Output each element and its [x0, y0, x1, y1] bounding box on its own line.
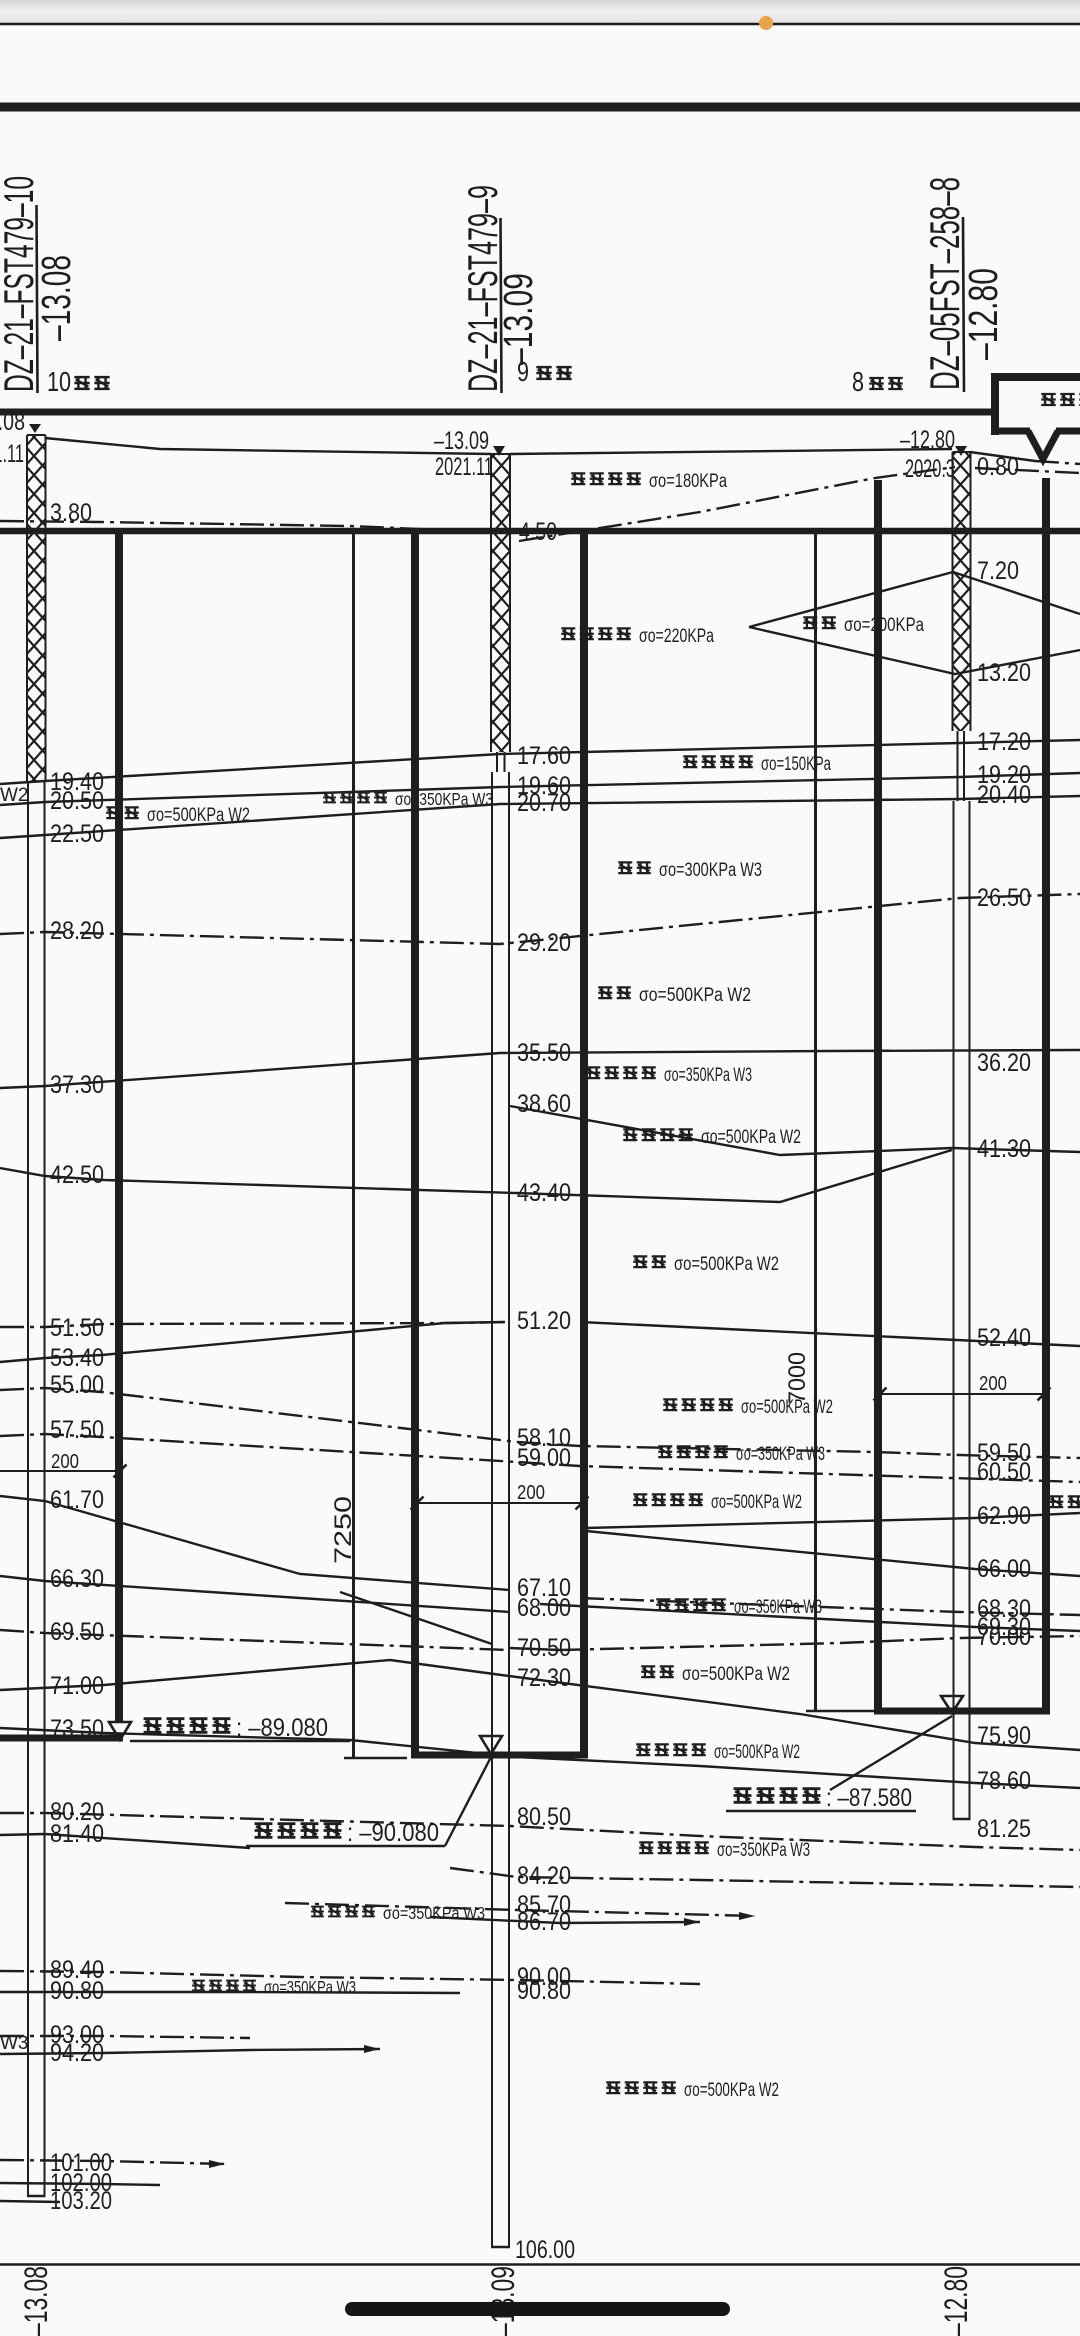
svg-text:σo=150KPa: σo=150KPa — [761, 754, 831, 775]
svg-text:22.50: 22.50 — [50, 820, 104, 848]
svg-text:90.80: 90.80 — [517, 1977, 571, 2005]
svg-text:81.40: 81.40 — [50, 1820, 104, 1848]
svg-text:σo=180KPa: σo=180KPa — [649, 471, 727, 492]
svg-text:200: 200 — [51, 1451, 79, 1473]
svg-text:: –90.080: : –90.080 — [347, 1819, 439, 1847]
svg-text:σo=350KPa W3: σo=350KPa W3 — [734, 1597, 822, 1618]
svg-text:72.30: 72.30 — [517, 1664, 571, 1692]
svg-text:–12.80: –12.80 — [961, 268, 1006, 360]
svg-text:26.50: 26.50 — [977, 884, 1031, 912]
svg-text:7250: 7250 — [330, 1496, 357, 1564]
svg-text:53.40: 53.40 — [50, 1344, 104, 1372]
svg-text:38.60: 38.60 — [517, 1090, 571, 1118]
svg-text:55.00: 55.00 — [50, 1371, 104, 1399]
svg-text:20.40: 20.40 — [977, 781, 1031, 809]
svg-text:17.60: 17.60 — [517, 742, 571, 770]
svg-text:57.50: 57.50 — [50, 1416, 104, 1444]
svg-text:80.50: 80.50 — [517, 1803, 571, 1831]
svg-text:7.20: 7.20 — [977, 557, 1019, 585]
svg-text:84.20: 84.20 — [517, 1862, 571, 1890]
svg-text:200: 200 — [979, 1373, 1007, 1395]
svg-text:0.80: 0.80 — [977, 453, 1019, 481]
svg-text:σo=350KPa W3: σo=350KPa W3 — [717, 1840, 810, 1861]
svg-text:35.50: 35.50 — [517, 1039, 571, 1067]
svg-text:σo=220KPa: σo=220KPa — [639, 626, 714, 647]
svg-text:90.80: 90.80 — [50, 1977, 104, 2005]
svg-text:2021.11: 2021.11 — [0, 440, 24, 468]
svg-text:28.20: 28.20 — [50, 917, 104, 945]
svg-text:66.00: 66.00 — [977, 1555, 1031, 1583]
svg-text:70.50: 70.50 — [517, 1634, 571, 1662]
svg-text:–13.08: –13.08 — [18, 2266, 54, 2336]
svg-text:σo=500KPa W2: σo=500KPa W2 — [147, 805, 250, 826]
svg-text:81.25: 81.25 — [977, 1815, 1031, 1843]
svg-text:4.50: 4.50 — [519, 518, 557, 546]
svg-text:200: 200 — [517, 1482, 545, 1504]
svg-text:–13.08: –13.08 — [34, 255, 79, 341]
svg-text:20.70: 20.70 — [517, 789, 571, 817]
svg-text:51.20: 51.20 — [517, 1307, 571, 1335]
svg-text:62.90: 62.90 — [977, 1502, 1031, 1530]
svg-text:σo=350KPa W3: σo=350KPa W3 — [383, 1903, 485, 1923]
svg-text:70.00: 70.00 — [977, 1623, 1031, 1651]
svg-text:–12.80: –12.80 — [938, 2266, 974, 2336]
svg-text:17.20: 17.20 — [977, 728, 1031, 756]
svg-text:36.20: 36.20 — [977, 1049, 1031, 1077]
svg-text:σo=500KPa W2: σo=500KPa W2 — [701, 1127, 801, 1148]
svg-text:75.90: 75.90 — [977, 1722, 1031, 1750]
svg-text:σo=350KPa W3: σo=350KPa W3 — [395, 789, 493, 809]
svg-text:52.40: 52.40 — [977, 1324, 1031, 1352]
svg-text:29.20: 29.20 — [517, 929, 571, 957]
svg-text:42.50: 42.50 — [50, 1161, 104, 1189]
svg-text:78.60: 78.60 — [977, 1767, 1031, 1795]
svg-text:σo=500KPa W2: σo=500KPa W2 — [639, 985, 751, 1006]
svg-text:13.20: 13.20 — [977, 659, 1031, 687]
svg-text:66.30: 66.30 — [50, 1565, 104, 1593]
svg-text:43.40: 43.40 — [517, 1179, 571, 1207]
svg-text:σo=500KPa W2: σo=500KPa W2 — [684, 2080, 779, 2101]
svg-text:: –89.080: : –89.080 — [236, 1714, 328, 1742]
svg-text:41.30: 41.30 — [977, 1135, 1031, 1163]
svg-text:2021.11: 2021.11 — [435, 453, 493, 481]
svg-text:–13.09: –13.09 — [485, 2266, 521, 2336]
svg-text:73.50: 73.50 — [50, 1715, 104, 1743]
svg-text:σo=500KPa W2: σo=500KPa W2 — [741, 1397, 833, 1418]
svg-text:9: 9 — [517, 356, 529, 387]
svg-text:61.70: 61.70 — [50, 1486, 104, 1514]
svg-text:86.70: 86.70 — [517, 1908, 571, 1936]
svg-text:W3: W3 — [0, 2033, 29, 2054]
svg-text:σo=200KPa: σo=200KPa — [844, 615, 924, 636]
svg-text:8: 8 — [852, 366, 864, 397]
svg-text:σo=350KPa W3: σo=350KPa W3 — [264, 1977, 356, 1997]
svg-text:68.00: 68.00 — [517, 1594, 571, 1622]
svg-text:103.20: 103.20 — [50, 2187, 112, 2215]
svg-text:σo=500KPa W2: σo=500KPa W2 — [682, 1664, 790, 1685]
svg-text:3.80: 3.80 — [50, 499, 92, 527]
svg-text:σo=500KPa W2: σo=500KPa W2 — [711, 1492, 802, 1513]
svg-text:–13.09: –13.09 — [434, 427, 489, 455]
svg-text:20.50: 20.50 — [50, 787, 104, 815]
svg-text:σo=500KPa W2: σo=500KPa W2 — [714, 1742, 800, 1763]
svg-text:–13.09: –13.09 — [496, 273, 541, 365]
svg-text:σo=500KPa W2: σo=500KPa W2 — [674, 1254, 779, 1275]
svg-text:2020.3: 2020.3 — [905, 455, 955, 483]
svg-text:94.20: 94.20 — [50, 2039, 104, 2067]
svg-text:σo=350KPa W3: σo=350KPa W3 — [736, 1444, 825, 1465]
svg-text:106.00: 106.00 — [515, 2236, 575, 2264]
svg-text:–12.80: –12.80 — [900, 426, 955, 454]
svg-text:37.30: 37.30 — [50, 1071, 104, 1099]
svg-text:10: 10 — [47, 366, 71, 397]
svg-text:60.50: 60.50 — [977, 1458, 1031, 1486]
svg-text:σo=300KPa W3: σo=300KPa W3 — [659, 860, 762, 881]
svg-text:W2: W2 — [0, 785, 29, 806]
svg-text:69.50: 69.50 — [50, 1618, 104, 1646]
svg-text:59.00: 59.00 — [517, 1444, 571, 1472]
svg-text:51.50: 51.50 — [50, 1314, 104, 1342]
svg-text:: –87.580: : –87.580 — [826, 1784, 912, 1812]
svg-text:71.00: 71.00 — [50, 1672, 104, 1700]
svg-text:–13.08: –13.08 — [0, 408, 25, 436]
svg-text:σo=350KPa W3: σo=350KPa W3 — [664, 1065, 752, 1086]
